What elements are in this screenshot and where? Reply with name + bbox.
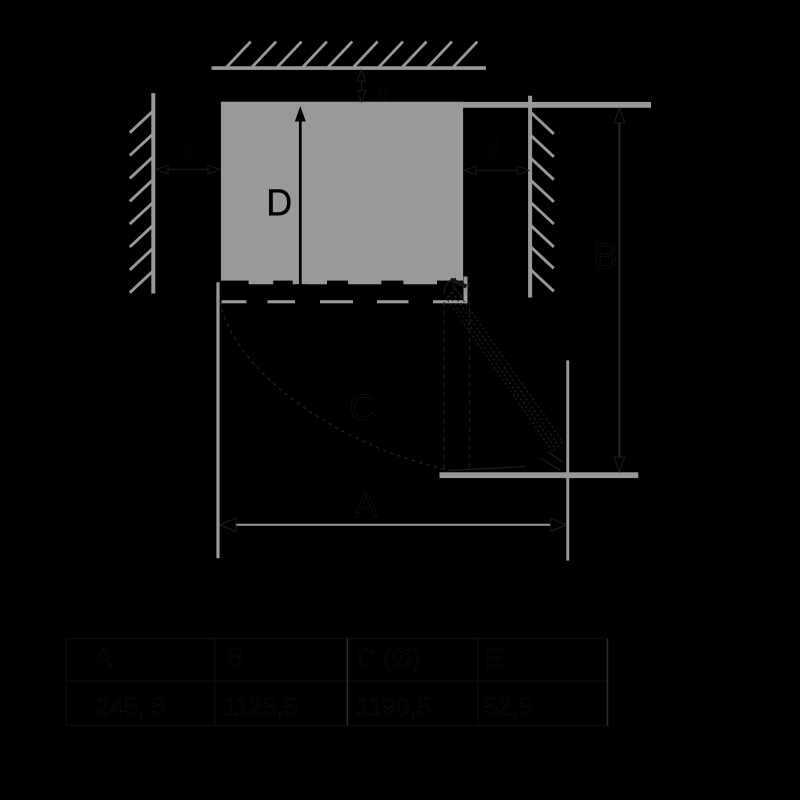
- svg-text:C: C: [349, 387, 375, 428]
- svg-text:A: A: [95, 642, 113, 672]
- svg-text:E: E: [485, 643, 502, 673]
- svg-text:C (Ø): C (Ø): [357, 643, 421, 673]
- svg-text:e: e: [377, 80, 389, 105]
- svg-text:1190,5: 1190,5: [356, 693, 431, 721]
- svg-text:B: B: [226, 642, 243, 672]
- svg-text:f: f: [183, 134, 193, 172]
- svg-text:A: A: [354, 484, 378, 525]
- svg-text:B: B: [594, 235, 618, 276]
- svg-text:f: f: [489, 134, 499, 172]
- svg-text:52,5: 52,5: [484, 693, 533, 721]
- svg-text:1125,5: 1125,5: [223, 693, 298, 721]
- svg-text:245, 5: 245, 5: [96, 693, 166, 721]
